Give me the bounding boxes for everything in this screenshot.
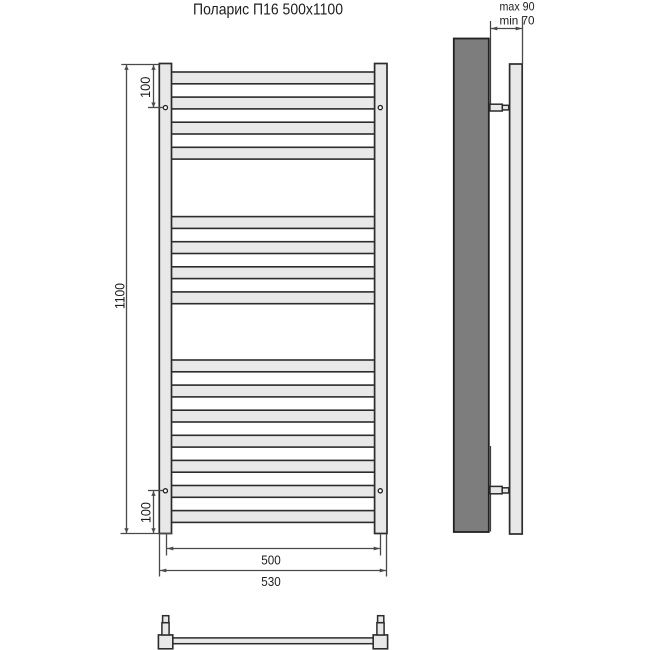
svg-text:1100: 1100 [112, 283, 127, 309]
svg-text:500: 500 [261, 553, 281, 568]
svg-text:100: 100 [138, 77, 153, 99]
svg-text:min 70: min 70 [500, 13, 535, 27]
svg-text:max 90: max 90 [500, 0, 535, 14]
svg-text:Поларис П16 500x1100: Поларис П16 500x1100 [193, 2, 343, 19]
svg-text:530: 530 [261, 574, 281, 589]
svg-text:100: 100 [138, 502, 153, 523]
